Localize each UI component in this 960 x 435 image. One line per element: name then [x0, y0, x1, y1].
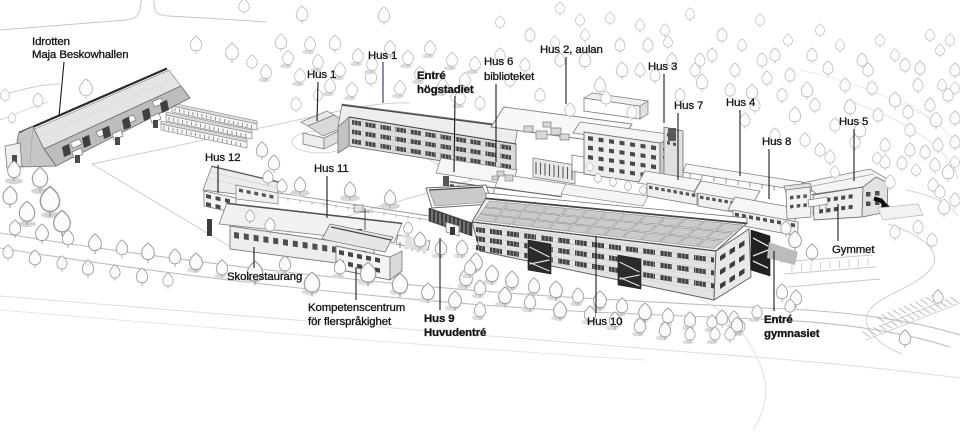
svg-text:Hus 1: Hus 1	[368, 50, 397, 62]
svg-text:Hus 1: Hus 1	[307, 69, 336, 81]
svg-text:Huvudentré: Huvudentré	[424, 327, 486, 339]
svg-text:Maja Beskowhallen: Maja Beskowhallen	[32, 49, 128, 61]
svg-text:biblioteket: biblioteket	[484, 71, 535, 83]
svg-text:gymnasiet: gymnasiet	[764, 328, 820, 340]
svg-text:Hus 2, aulan: Hus 2, aulan	[540, 44, 603, 56]
svg-text:Gymmet: Gymmet	[832, 244, 875, 256]
svg-text:Hus 12: Hus 12	[205, 152, 241, 164]
svg-text:Hus 10: Hus 10	[587, 316, 623, 328]
svg-text:Skolrestaurang: Skolrestaurang	[227, 271, 302, 283]
svg-text:Hus 7: Hus 7	[674, 100, 703, 112]
svg-text:Hus 11: Hus 11	[314, 163, 349, 175]
svg-text:Hus 9: Hus 9	[424, 313, 455, 325]
svg-text:Entré: Entré	[764, 314, 793, 326]
svg-text:högstadiet: högstadiet	[417, 84, 474, 96]
svg-text:Hus 5: Hus 5	[839, 116, 868, 128]
svg-text:Kompetenscentrum: Kompetenscentrum	[308, 302, 405, 314]
svg-text:Hus 6: Hus 6	[484, 56, 513, 68]
svg-text:för flerspråkighet: för flerspråkighet	[308, 316, 392, 328]
svg-text:Idrotten: Idrotten	[32, 36, 70, 48]
svg-text:Entré: Entré	[417, 70, 446, 82]
svg-text:Hus 4: Hus 4	[726, 97, 755, 109]
svg-text:Hus 3: Hus 3	[648, 61, 677, 73]
svg-text:Hus 8: Hus 8	[762, 136, 791, 148]
